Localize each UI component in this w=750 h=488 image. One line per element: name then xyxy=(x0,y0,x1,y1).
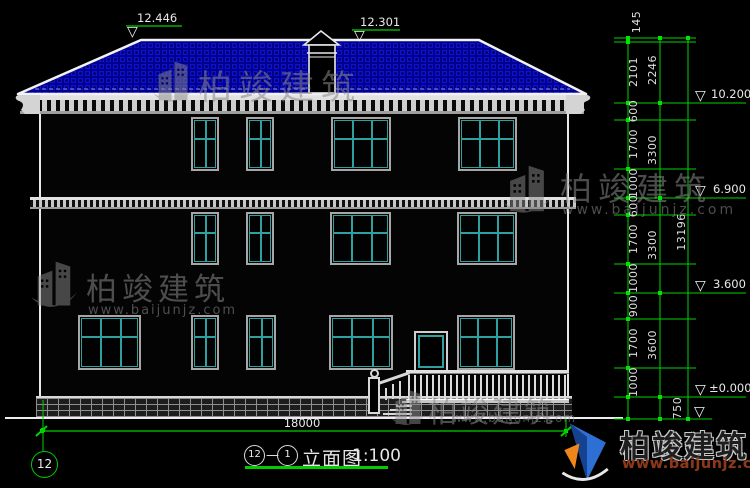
title-underline xyxy=(245,466,388,469)
grid-bubble: 12 xyxy=(31,451,58,478)
window-narrow xyxy=(191,117,219,171)
window-wide xyxy=(457,315,515,370)
newel-cap xyxy=(370,369,379,378)
window-narrow xyxy=(246,212,274,265)
title-bubble-right: 1 xyxy=(277,445,298,466)
company-logo-icon xyxy=(556,418,618,486)
elevation-ridge-right: 12.301 xyxy=(360,15,400,29)
window-narrow xyxy=(246,117,274,171)
dim-label: 1700 xyxy=(626,122,642,166)
window-narrow xyxy=(246,315,276,370)
elevation-eave: 10.200 xyxy=(711,87,750,101)
elevation-triangle-icon: ▽ xyxy=(694,405,705,419)
cad-elevation-drawing: 145 2101 600 1700 1000 600 1700 1000 900… xyxy=(0,0,750,488)
elevation-ridge-left: 12.446 xyxy=(137,11,177,25)
elevation-triangle-icon: ▽ xyxy=(695,279,706,293)
title-bubble-left: 12 xyxy=(244,445,265,466)
dim-label: 1700 xyxy=(626,321,642,365)
elevation-level1: 3.600 xyxy=(713,277,746,291)
elevation-triangle-icon: ▽ xyxy=(127,25,138,39)
watermark-logo-icon xyxy=(500,160,554,222)
dim-label: 2246 xyxy=(645,48,661,92)
porch-rail-top xyxy=(406,370,569,374)
elevation-level2: 6.900 xyxy=(713,182,746,196)
window-narrow xyxy=(191,315,219,370)
elevation-triangle-icon: ▽ xyxy=(695,383,706,397)
dim-label: 3300 xyxy=(645,223,661,267)
watermark-url: www.baijunjz.com xyxy=(562,202,736,218)
dim-label: 1000 xyxy=(626,360,642,404)
elevation-triangle-icon: ▽ xyxy=(354,29,365,43)
watermark-brand: 柏竣建筑 xyxy=(198,60,362,109)
watermark-logo-icon xyxy=(150,56,196,110)
window-wide xyxy=(329,315,393,370)
floor-band-dentils xyxy=(30,197,576,209)
dim-label: 1700 xyxy=(626,217,642,261)
entry-door xyxy=(414,331,448,372)
window-wide xyxy=(78,315,141,370)
watermark-logo-icon xyxy=(28,256,80,316)
drawing-scale: 1:100 xyxy=(352,446,401,466)
window-wide xyxy=(330,212,391,265)
dim-label: 145 xyxy=(629,0,645,44)
window-wide xyxy=(331,117,391,171)
elevation-ground: ±0.000 xyxy=(709,381,750,395)
watermark-logo-icon xyxy=(388,386,428,432)
dim-label: 2101 xyxy=(626,50,642,94)
company-logo-url: www.baijunjz.com xyxy=(622,456,750,472)
stair-baluster xyxy=(385,388,387,400)
watermark-url: www.baijunjz.com xyxy=(88,303,237,318)
dim-label: 3600 xyxy=(645,323,661,367)
window-narrow xyxy=(191,212,219,265)
width-dim-label: 18000 xyxy=(272,416,332,430)
elevation-triangle-icon: ▽ xyxy=(695,89,706,103)
